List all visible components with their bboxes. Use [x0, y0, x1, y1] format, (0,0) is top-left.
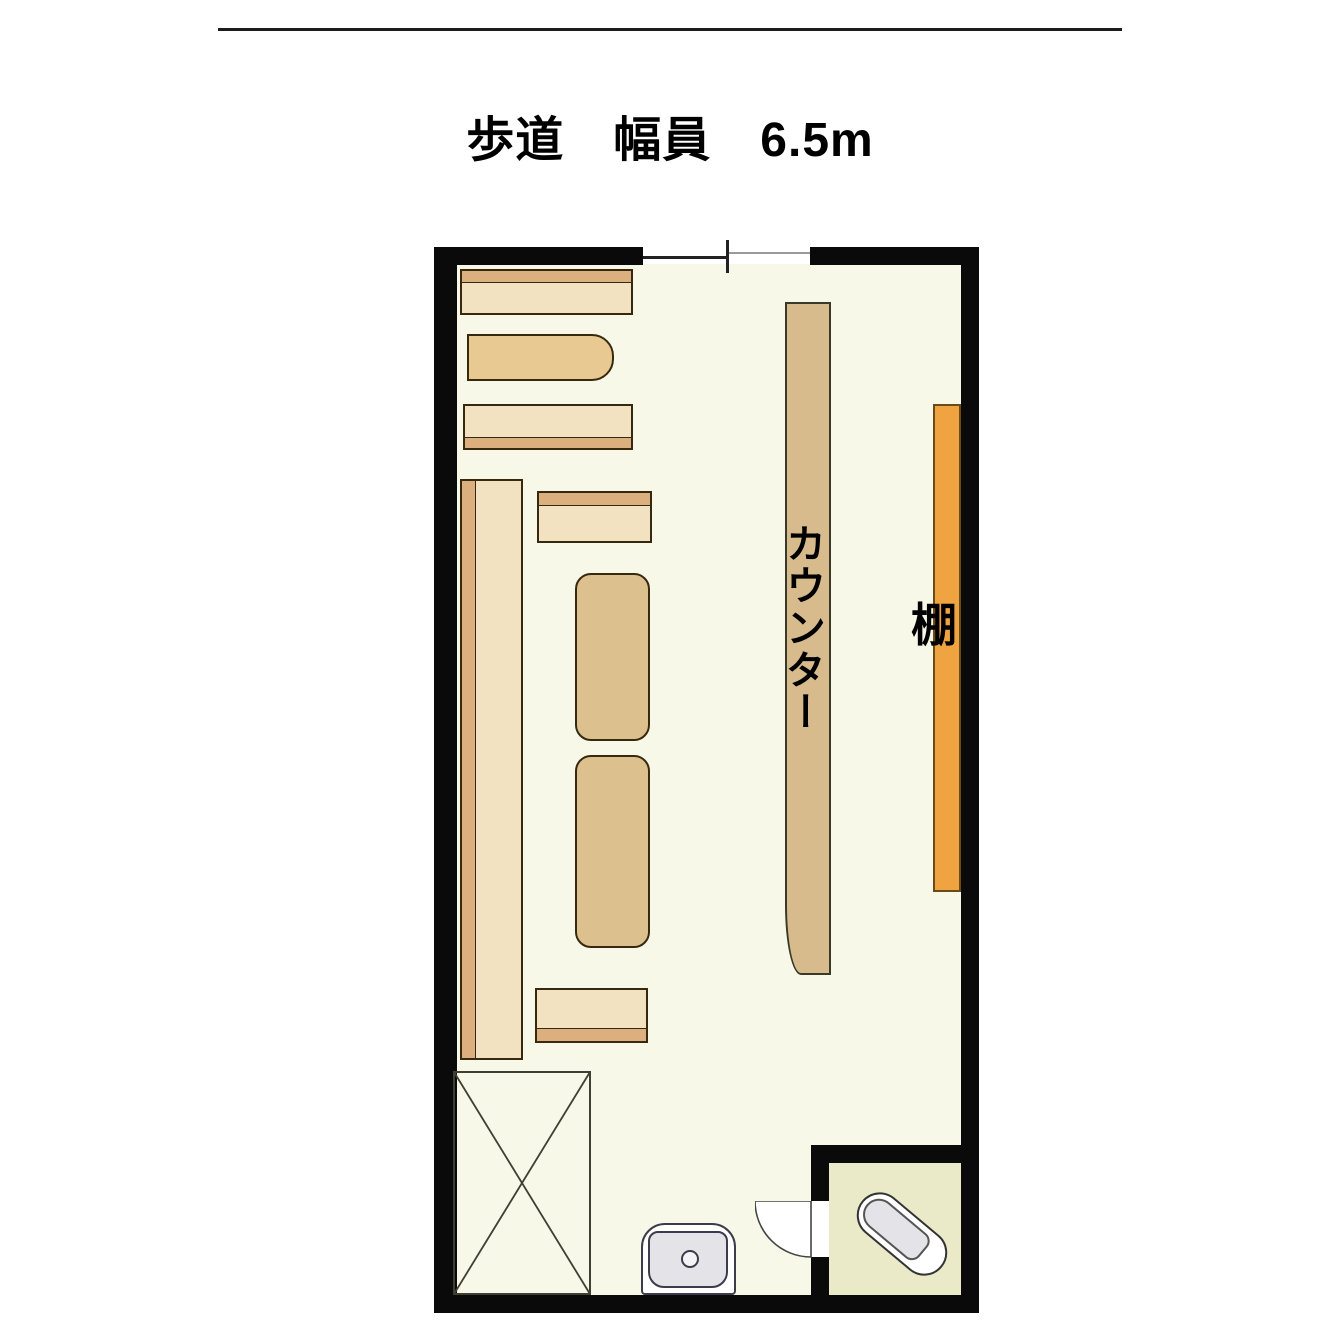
entrance-door-leaf-line [643, 256, 727, 259]
entrance-door-track-line [727, 252, 810, 254]
shelf-second [463, 404, 633, 450]
wall-shelf-label: 棚 [911, 589, 957, 655]
bathroom-door-opening [811, 1201, 829, 1257]
wall-right [961, 247, 979, 1313]
wall-side-shelf-trim [462, 481, 476, 1058]
shelf-top [460, 269, 633, 315]
wall-bottom [434, 1295, 979, 1313]
shelf-small-trim [539, 493, 650, 506]
bathroom-swing-door [755, 1201, 812, 1258]
shelf-top-trim [462, 271, 631, 283]
wall-top-right [810, 247, 979, 265]
void-x-area [453, 1071, 591, 1295]
floor-plan-page: 歩道 幅員 6.5m カウンター 棚 [0, 0, 1340, 1340]
shelf-bottom [535, 988, 648, 1043]
shelf-bottom-trim [537, 1028, 646, 1041]
wall-top-left [434, 247, 643, 265]
display-table-rounded [467, 334, 614, 381]
bathroom-wall-top [811, 1145, 961, 1163]
toilet-flush-button [681, 1250, 699, 1268]
counter-label: カウンター [785, 520, 831, 735]
entrance-door-tick [726, 240, 729, 273]
wall-side-shelf-tall [460, 479, 523, 1060]
page-title: 歩道 幅員 6.5m [0, 100, 1340, 170]
shelf-second-trim [465, 437, 631, 448]
center-table-1 [575, 573, 650, 741]
sidewalk-line [218, 28, 1122, 31]
center-table-2 [575, 755, 650, 948]
shelf-small [537, 491, 652, 543]
